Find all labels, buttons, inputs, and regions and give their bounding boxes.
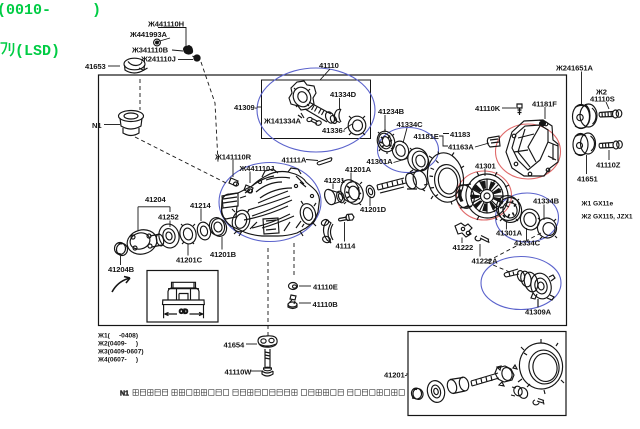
svg-text:41309-: 41309-: [234, 103, 258, 112]
svg-text:Ж141110R: Ж141110R: [214, 152, 252, 161]
svg-text:41201C: 41201C: [176, 255, 203, 264]
svg-text:41301: 41301: [475, 161, 496, 170]
svg-text:Ж3(0409-0607): Ж3(0409-0607): [97, 349, 144, 356]
svg-text:41114: 41114: [336, 241, 357, 250]
svg-text:41110: 41110: [319, 61, 339, 70]
svg-text:Ж241110J: Ж241110J: [140, 54, 176, 63]
svg-text:N1: N1: [92, 121, 102, 130]
svg-text:Ж2(0409- ): Ж2(0409- ): [97, 341, 138, 348]
svg-text:41336-: 41336-: [322, 126, 346, 135]
svg-text:Ж441993A: Ж441993A: [129, 30, 168, 39]
svg-text:OD: OD: [179, 309, 189, 315]
svg-text:Ж241651A: Ж241651A: [555, 63, 594, 72]
svg-text:Ж1 GX11e: Ж1 GX11e: [581, 200, 614, 207]
svg-text:41201D: 41201D: [360, 205, 387, 214]
svg-text:41110K: 41110K: [475, 104, 501, 113]
svg-text:Ж441110J: Ж441110J: [239, 164, 275, 173]
svg-text:41301A: 41301A: [496, 229, 523, 238]
svg-text:41309A: 41309A: [525, 307, 552, 316]
svg-text:(LSD): (LSD): [15, 43, 60, 60]
svg-text:41183: 41183: [450, 130, 470, 139]
svg-text:41204B: 41204B: [108, 265, 135, 274]
svg-text:41234B: 41234B: [378, 107, 405, 116]
svg-text:41214: 41214: [190, 201, 211, 210]
svg-text:41201-: 41201-: [384, 370, 408, 379]
svg-text:41334D: 41334D: [330, 90, 357, 99]
svg-text:Ж2 GX115, JZX1: Ж2 GX115, JZX1: [581, 213, 633, 220]
svg-text:41110Z: 41110Z: [596, 160, 621, 169]
svg-text:41181E: 41181E: [414, 132, 439, 141]
svg-text:41334B: 41334B: [533, 196, 560, 205]
svg-text:41653: 41653: [85, 62, 106, 71]
svg-text:Ж141334A: Ж141334A: [263, 116, 302, 125]
svg-text:Ж4(0607- ): Ж4(0607- ): [97, 357, 138, 364]
svg-text:Ж441110H: Ж441110H: [147, 19, 184, 28]
svg-text:41204: 41204: [145, 195, 166, 204]
svg-text:41334C: 41334C: [514, 238, 541, 247]
svg-text:N1: N1: [120, 391, 129, 398]
svg-text:41163A: 41163A: [448, 142, 474, 151]
svg-text:41110S: 41110S: [590, 94, 615, 103]
svg-text:41252: 41252: [158, 212, 179, 221]
svg-text:41222: 41222: [453, 243, 474, 252]
svg-text:41651: 41651: [577, 174, 598, 183]
svg-text:): ): [92, 2, 101, 19]
svg-text:Ж341110B: Ж341110B: [131, 45, 169, 54]
svg-text:41111A: 41111A: [282, 155, 307, 164]
svg-text:41110B: 41110B: [313, 300, 339, 309]
svg-text:41201B: 41201B: [210, 250, 237, 259]
svg-text:41110W: 41110W: [225, 367, 253, 376]
svg-text:41110E: 41110E: [313, 282, 338, 291]
svg-text:41201A: 41201A: [345, 165, 372, 174]
svg-text:41654: 41654: [224, 340, 245, 349]
svg-text:41334C: 41334C: [397, 120, 424, 129]
svg-text:(0010-: (0010-: [0, 2, 51, 19]
svg-text:Ж1( -0408): Ж1( -0408): [97, 333, 138, 340]
svg-text:41181F: 41181F: [532, 99, 557, 108]
